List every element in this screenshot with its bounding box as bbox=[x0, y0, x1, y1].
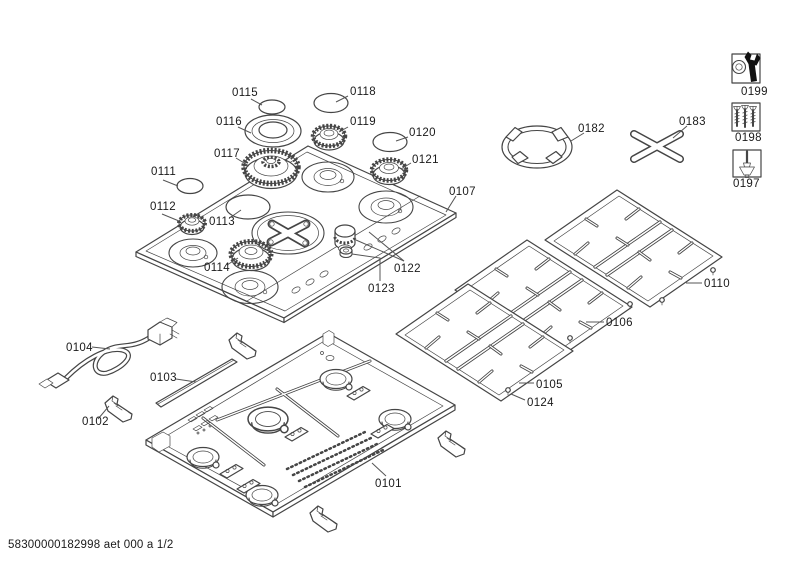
mounting-bracket-top bbox=[229, 333, 256, 359]
part-label-0115: 0115 bbox=[232, 87, 258, 99]
part-label-0105: 0105 bbox=[536, 379, 563, 391]
part-label-0182: 0182 bbox=[578, 123, 605, 135]
burner-cap-0115 bbox=[259, 100, 285, 114]
part-label-0103: 0103 bbox=[150, 372, 177, 384]
part-label-0121: 0121 bbox=[412, 154, 439, 166]
part-label-0106: 0106 bbox=[606, 317, 633, 329]
part-label-0183: 0183 bbox=[679, 116, 706, 128]
part-label-0123: 0123 bbox=[368, 283, 395, 295]
part-label-0122: 0122 bbox=[394, 263, 421, 275]
part-label-0101: 0101 bbox=[375, 478, 402, 490]
burner-head-0121 bbox=[372, 160, 406, 185]
part-label-0113: 0113 bbox=[209, 216, 235, 228]
wrench-and-nut-icon bbox=[732, 52, 761, 84]
screws-icon bbox=[732, 103, 760, 131]
part-label-0119: 0119 bbox=[350, 116, 376, 128]
part-label-0120: 0120 bbox=[409, 127, 436, 139]
burner-head-0119 bbox=[313, 126, 345, 150]
burner-cap-0118 bbox=[314, 94, 348, 113]
part-label-0102: 0102 bbox=[82, 416, 109, 428]
part-label-0197: 0197 bbox=[733, 178, 760, 190]
base-tray-0101 bbox=[146, 331, 455, 518]
part-label-0114: 0114 bbox=[204, 262, 230, 274]
part-label-0104: 0104 bbox=[66, 342, 93, 354]
burner-head-0112 bbox=[179, 215, 205, 235]
part-label-0199: 0199 bbox=[741, 86, 768, 98]
wok-ring-0182 bbox=[502, 126, 572, 168]
part-label-0118: 0118 bbox=[350, 86, 376, 98]
part-label-0116: 0116 bbox=[216, 116, 242, 128]
part-label-0112: 0112 bbox=[150, 201, 176, 213]
part-label-0111: 0111 bbox=[151, 166, 176, 178]
part-label-0198: 0198 bbox=[735, 132, 762, 144]
wok-burner-head-0117 bbox=[244, 151, 298, 189]
mounting-bracket-0102 bbox=[105, 396, 132, 422]
part-label-0107: 0107 bbox=[449, 186, 476, 198]
part-label-0117: 0117 bbox=[214, 148, 240, 160]
burner-cap-0111 bbox=[177, 179, 203, 194]
mounting-bracket-bottom bbox=[310, 506, 337, 532]
part-label-0124: 0124 bbox=[527, 397, 554, 409]
mounting-bracket-right bbox=[438, 431, 465, 457]
screwdriver-nozzle-icon bbox=[733, 150, 761, 178]
document-reference-code: 58300000182998 aet 000 a 1/2 bbox=[8, 539, 173, 551]
part-label-0110: 0110 bbox=[704, 278, 730, 290]
exploded-parts-diagram-page: 0115 0116 0117 0111 0112 0113 0114 0118 … bbox=[0, 0, 800, 566]
burner-ring-0116 bbox=[245, 115, 301, 147]
burner-cap-0120 bbox=[373, 133, 407, 152]
